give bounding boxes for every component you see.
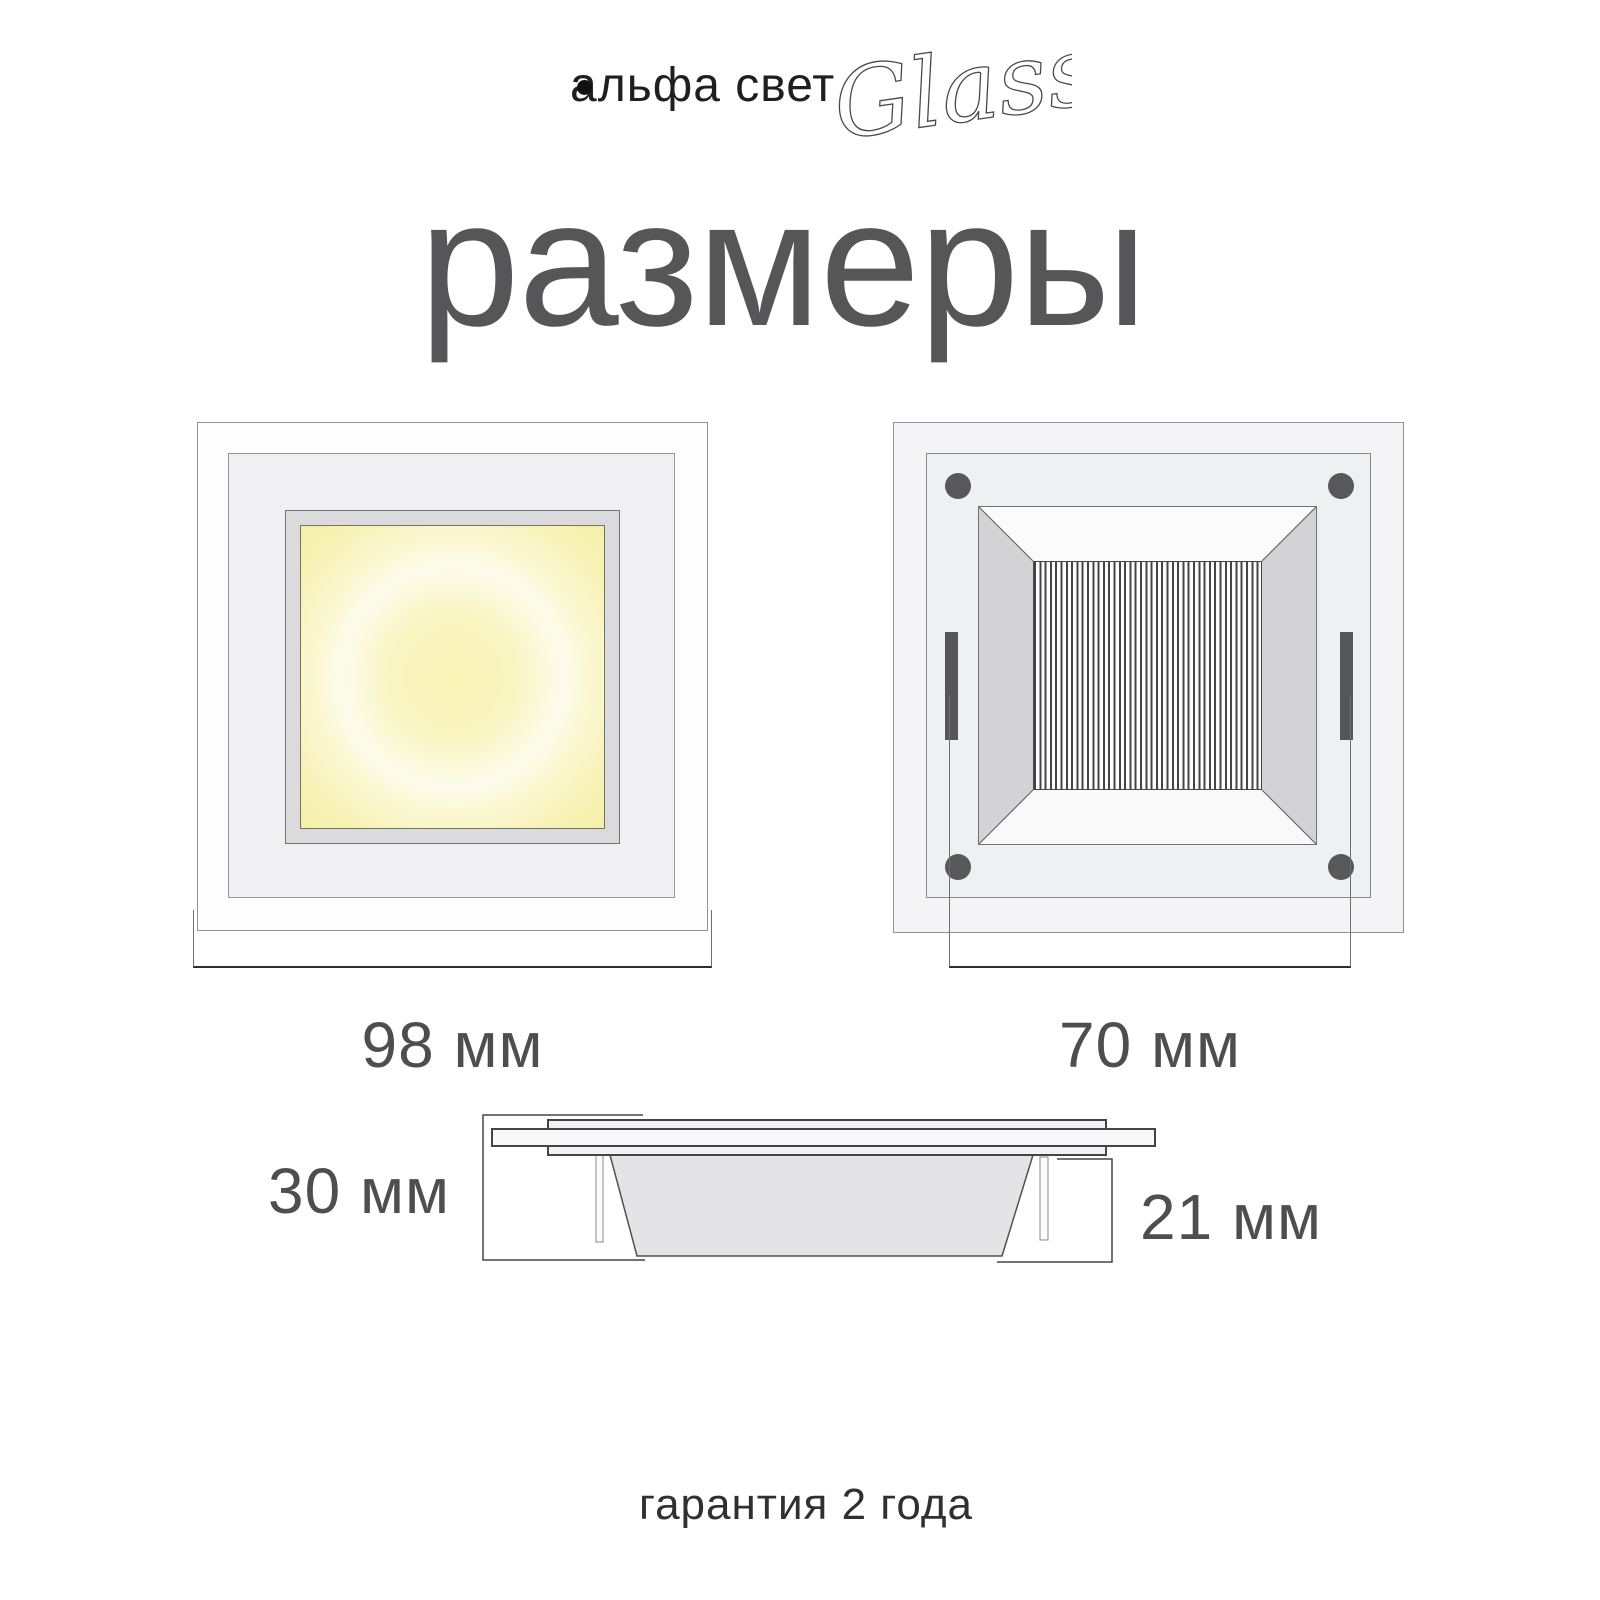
led-glow (300, 525, 605, 829)
warranty-text: гарантия 2 года (6, 1480, 1600, 1530)
brand-logo: альфа свет (570, 58, 835, 118)
side-glass-plate (492, 1129, 1155, 1146)
front-view-diagram (197, 422, 708, 931)
back-width-label: 70 мм (949, 1008, 1351, 1082)
spring-pin (1040, 1157, 1048, 1240)
side-recess-label: 21 мм (1140, 1180, 1322, 1254)
side-height-label: 30 мм (210, 1154, 450, 1228)
screw-icon (1328, 473, 1354, 499)
front-width-label: 98 мм (193, 1008, 712, 1082)
collection-name-text: Glass (827, 14, 1072, 162)
page-title: размеры (0, 160, 1583, 367)
width-bracket-back (949, 695, 1351, 968)
logo-dot-icon (577, 80, 592, 95)
collection-script: Glass (812, 6, 1072, 186)
screw-icon (945, 473, 971, 499)
spring-pin (596, 1155, 603, 1242)
brand-logo-text: альфа свет (570, 59, 835, 112)
side-heatsink-body (610, 1155, 1033, 1256)
width-bracket-front (193, 910, 712, 968)
front-bezel (285, 510, 620, 844)
dimensions-infographic: альфа свет Glass размеры 98 мм (0, 0, 1600, 1600)
